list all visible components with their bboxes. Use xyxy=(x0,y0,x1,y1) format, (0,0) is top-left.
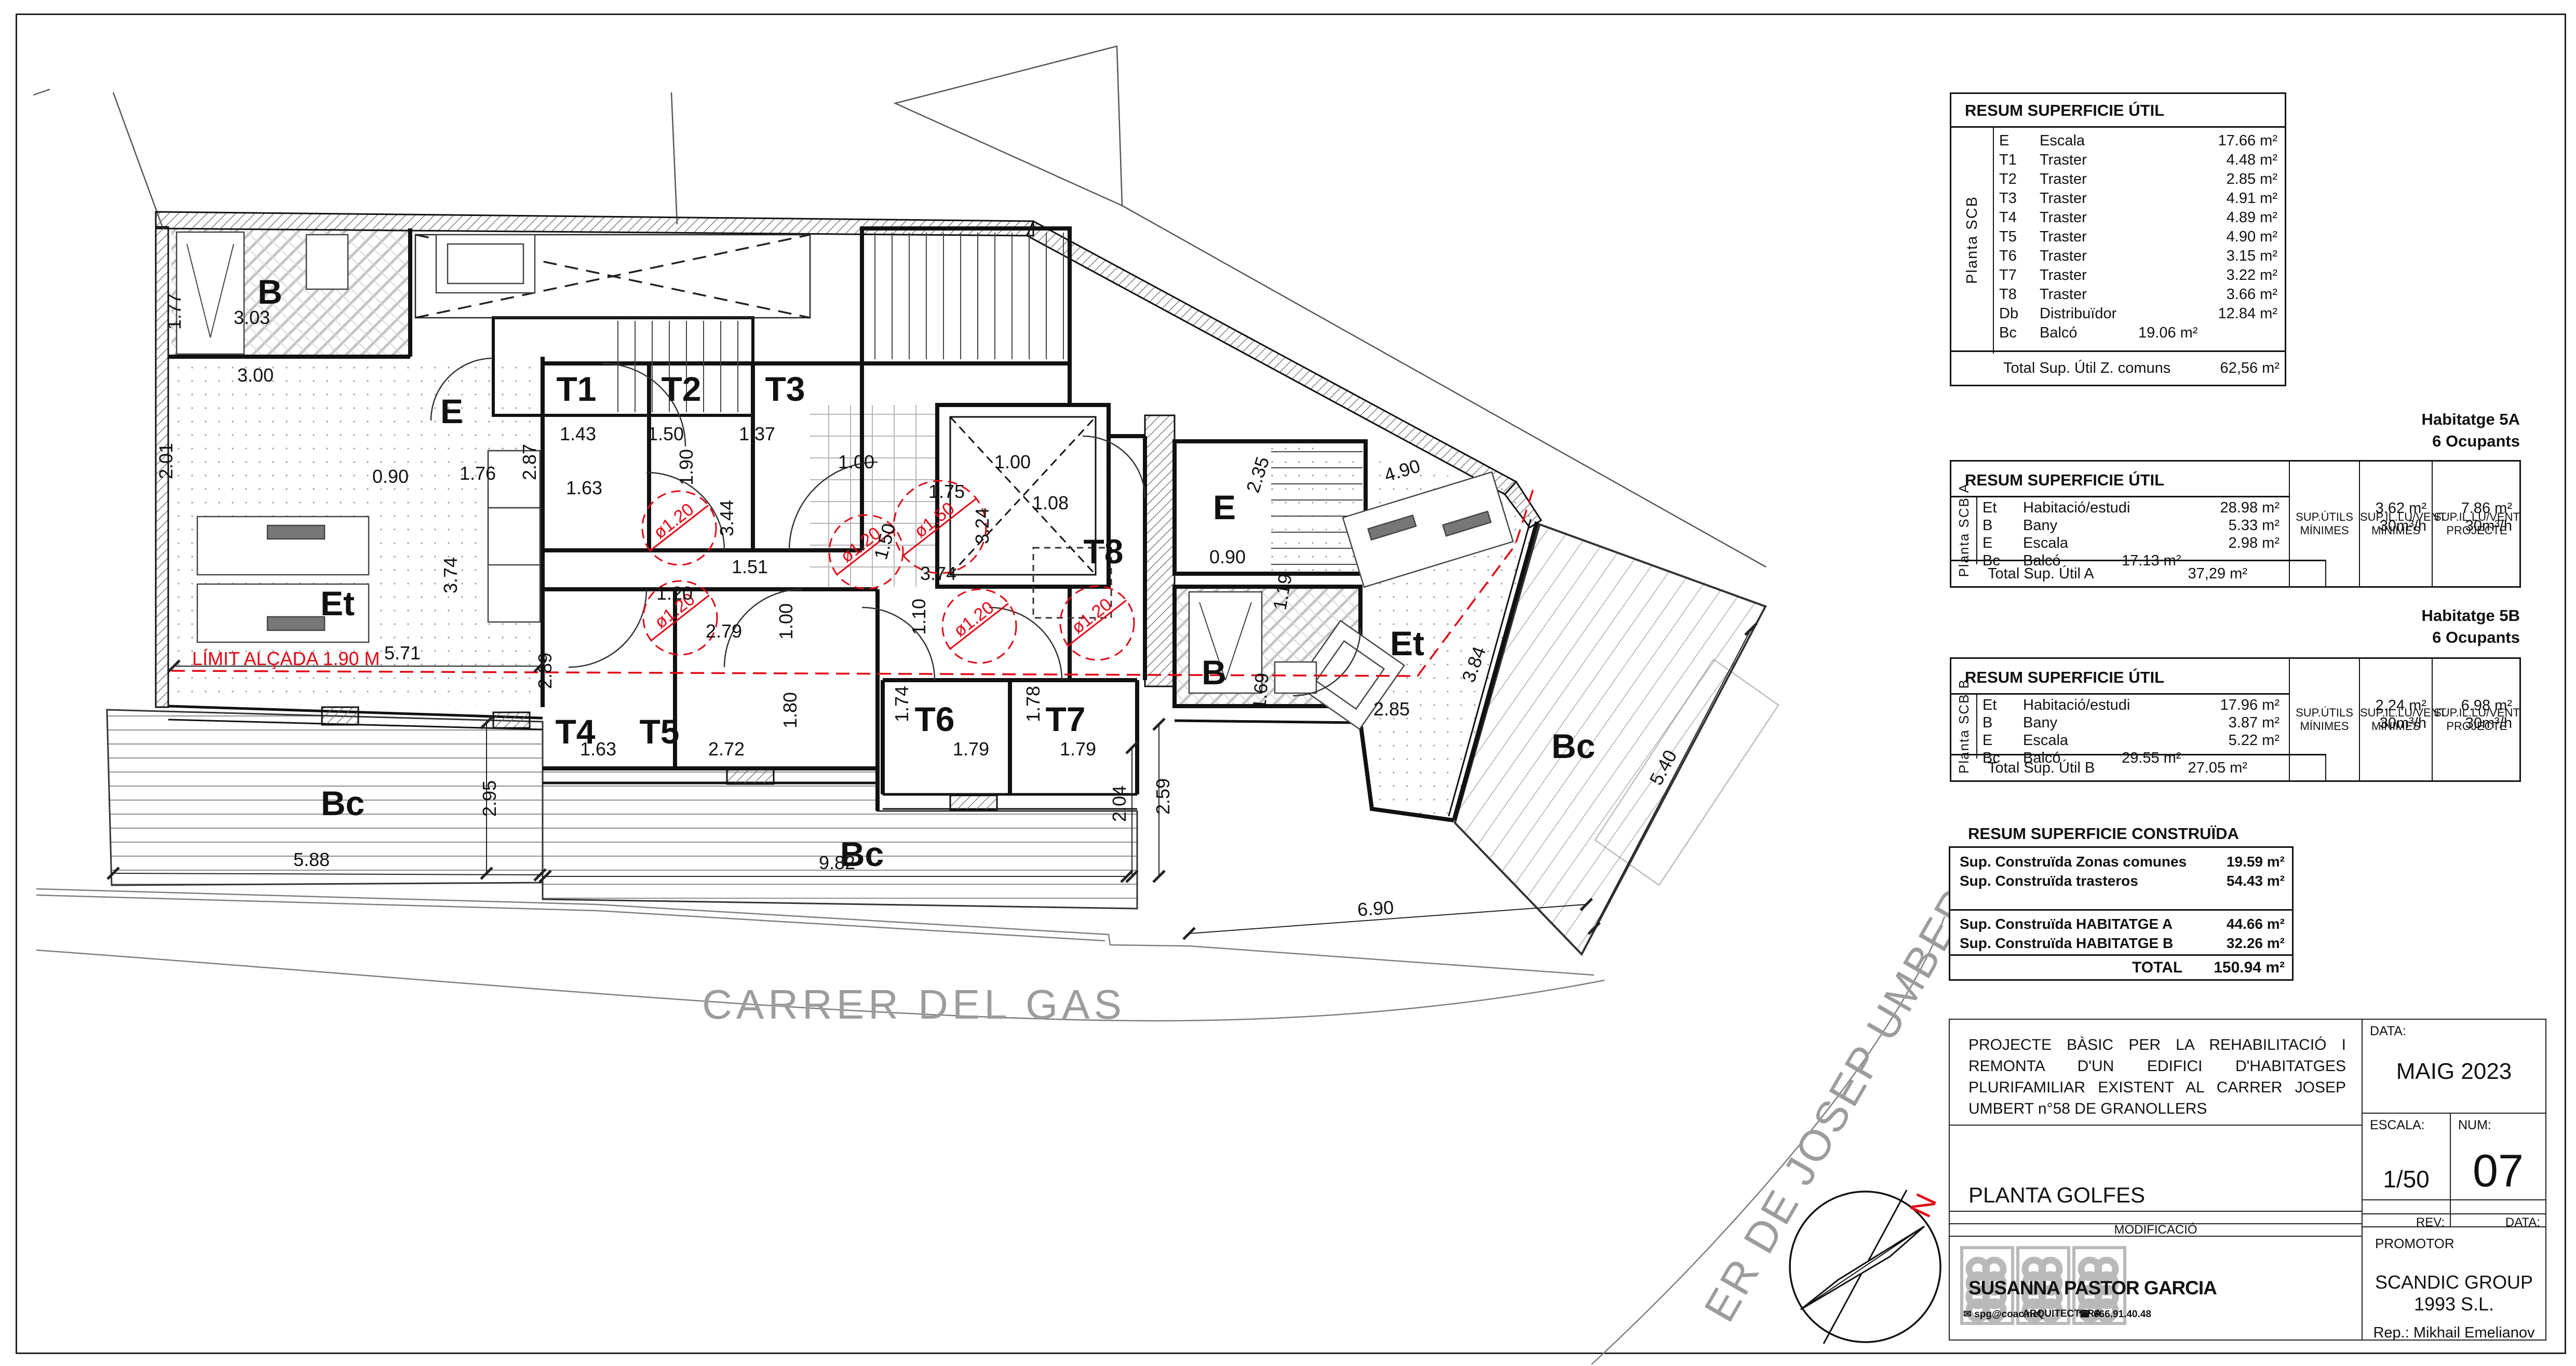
architect-cell: SUSANNA PASTOR GARCIA ✉ spg@coac.net ARQ… xyxy=(1949,1236,2363,1341)
dim-label: 1.43 xyxy=(560,423,596,444)
plan-name-cell: PLANTA GOLFES xyxy=(1949,1125,2363,1212)
dim-label: 1.76 xyxy=(460,463,496,484)
dim-label: 1.08 xyxy=(1032,492,1069,513)
escala-cell: ESCALA: 1/50 xyxy=(2362,1113,2451,1200)
table-row: T6Traster3.15 m² xyxy=(1999,247,2282,266)
dim-label: 2.87 xyxy=(519,444,540,480)
room-label: Bc xyxy=(321,784,365,822)
dim-label: 2.01 xyxy=(155,443,177,479)
dim-label: 3.03 xyxy=(234,307,270,328)
room-label: Bc xyxy=(1552,727,1595,765)
table-habitatge-b: RESUM SUPERFICIE ÚTIL SUP.ÚTILS MÍNIMES … xyxy=(1950,657,2521,782)
table-title: RESUM SUPERFICIE ÚTIL xyxy=(1951,94,2285,120)
dim-label: 1.00 xyxy=(994,451,1031,472)
table-row: T1Traster4.48 m² xyxy=(1999,151,2282,170)
dim-label: 1.37 xyxy=(739,423,775,444)
table-row: Sup. Construïda HABITATGE B32.26 m² xyxy=(1950,934,2292,953)
dim-label: N xyxy=(1904,1188,1944,1222)
street-label: CARRER DEL GAS xyxy=(702,981,1126,1027)
dim-label: 2.89 xyxy=(534,653,556,689)
table-resum-util-comuns: RESUM SUPERFICIE ÚTIL Planta SCB EEscala… xyxy=(1950,92,2286,386)
dim-label: 1.63 xyxy=(580,738,616,760)
hab-b-heading: Habitatge 5B 6 Ocupants xyxy=(2364,606,2520,647)
drawing-sheet: ø1.20ø1.20ø1.50ø1.20ø1.20ø1.20 BEEtT1T2T… xyxy=(0,0,2576,1366)
modificacio-row: MODIFICACIÓ xyxy=(1949,1223,2363,1237)
room-label: B xyxy=(1202,653,1226,692)
dim-label: 1.77 xyxy=(164,293,185,330)
sheet-number: 07 xyxy=(2451,1144,2545,1197)
total-value: 37,29 m² xyxy=(2188,565,2325,583)
date-value: MAIG 2023 xyxy=(2363,1059,2545,1085)
dim-label: 1.51 xyxy=(732,556,768,577)
table-row: EEscala5.22 m² xyxy=(1982,732,2284,749)
dim-label: 1.80 xyxy=(779,692,801,728)
dim-label: 5.88 xyxy=(293,849,330,870)
dim-label: 1.69 xyxy=(1248,672,1273,710)
table-row: T4Traster4.89 m² xyxy=(1999,208,2282,227)
dim-label: 1.00 xyxy=(775,603,797,640)
room-label: E xyxy=(440,392,463,430)
table-row: EtHabitació/estudi17.96 m² xyxy=(1982,696,2284,714)
vent-value: 7.86 m² xyxy=(2432,500,2517,517)
table-row: T8Traster3.66 m² xyxy=(1999,285,2282,304)
room-label: T7 xyxy=(1045,700,1085,738)
architect-phone: ☎ 666.91.40.48 xyxy=(2079,1308,2151,1320)
dim-label: 3.74 xyxy=(440,557,461,593)
architect-name: SUSANNA PASTOR GARCIA xyxy=(1968,1277,2217,1299)
table-row: EEscala17.66 m² xyxy=(1999,131,2282,151)
room-label: E xyxy=(1213,488,1236,526)
dim-label: 3.74 xyxy=(920,563,956,584)
vent-value: 3.62 m² xyxy=(2359,500,2432,517)
dim-label: 1.20 xyxy=(656,583,693,604)
promotor-rep: Rep.: Mikhail Emelianov xyxy=(2363,1324,2545,1342)
dim-label: 2.85 xyxy=(1373,698,1410,720)
table-row: BBany5.33 m² xyxy=(1982,517,2284,534)
table-body: EtHabitació/estudi28.98 m²BBany5.33 m²EE… xyxy=(1982,499,2284,570)
stair-treads-top xyxy=(872,233,1066,359)
circle-1.20: ø1.20 xyxy=(650,499,698,543)
total-label: TOTAL xyxy=(1950,959,2214,977)
dim-label: 5.71 xyxy=(384,642,421,664)
dim-label: 2.72 xyxy=(708,738,745,760)
table-row: EEscala2.98 m² xyxy=(1982,534,2284,552)
vent-value: 30m³/h xyxy=(2359,518,2432,535)
project-description: PROJECTE BÀSIC PER LA REHABILITACIÓ I RE… xyxy=(1950,1020,2362,1119)
blank-cell xyxy=(2450,1199,2546,1214)
dim-label: 1.00 xyxy=(838,451,874,472)
room-label: T8 xyxy=(1083,532,1123,571)
table-row: EtHabitació/estudi28.98 m² xyxy=(1982,499,2284,517)
vent-value: 2.24 m² xyxy=(2359,697,2432,714)
dim-label: 1.79 xyxy=(953,738,989,760)
dim-label: 1.10 xyxy=(908,599,929,635)
scale-value: 1/50 xyxy=(2363,1165,2450,1193)
num-cell: NUM: 07 xyxy=(2450,1113,2546,1200)
circle-1.20: ø1.20 xyxy=(950,598,998,641)
dim-label: 3.24 xyxy=(972,508,993,544)
promotor-name: SCANDIC GROUP 1993 S.L. xyxy=(2363,1272,2545,1315)
table-row: T2Traster2.85 m² xyxy=(1999,170,2282,189)
dim-label: 1.75 xyxy=(928,481,965,502)
dim-label: 2.04 xyxy=(1109,786,1130,822)
table-row: T3Traster4.91 m² xyxy=(1999,189,2282,208)
construida-title: RESUM SUPERFICIE CONSTRUÏDA xyxy=(1968,824,2239,843)
table-row: Sup. Construïda trasteros54.43 m² xyxy=(1950,871,2292,890)
table-construida: Sup. Construïda Zonas comunes19.59 m²Sup… xyxy=(1949,846,2294,981)
table-body: Sup. Construïda HABITATGE A44.66 m²Sup. … xyxy=(1950,914,2292,953)
data-cell: DATA: MAIG 2023 xyxy=(2362,1019,2546,1114)
room-label: T5 xyxy=(639,712,679,751)
total-value: 62,56 m² xyxy=(2220,360,2285,377)
total-label: Total Sup. Útil A xyxy=(1988,565,2188,583)
blank-cell xyxy=(2362,1199,2451,1214)
dim-label: 3.44 xyxy=(716,500,737,536)
dim-label: LÍMIT ALÇADA 1.90 M xyxy=(192,648,380,669)
table-body: Sup. Construïda Zonas comunes19.59 m²Sup… xyxy=(1950,848,2292,890)
dim-label: 1.50 xyxy=(648,423,684,444)
dim-label: 0.90 xyxy=(1209,546,1246,567)
project-description-cell: PROJECTE BÀSIC PER LA REHABILITACIÓ I RE… xyxy=(1949,1019,2363,1126)
table-row: Sup. Construïda Zonas comunes19.59 m² xyxy=(1950,852,2292,871)
room-label: T2 xyxy=(661,370,701,408)
room-label: B xyxy=(258,273,282,311)
rev-cell: REV: xyxy=(2362,1213,2451,1227)
vent-value: 30m³/h xyxy=(2432,715,2517,732)
total-value: 27.05 m² xyxy=(2188,760,2325,777)
dim-label: 2.95 xyxy=(479,780,500,817)
table-body: EEscala17.66 m²T1Traster4.48 m²T2Traster… xyxy=(1999,131,2282,343)
dim-label: 2.79 xyxy=(706,620,742,642)
data2-cell: DATA: xyxy=(2450,1213,2546,1227)
room-label: Et xyxy=(320,584,355,623)
dim-label: 1.90 xyxy=(676,449,697,485)
room-label: T3 xyxy=(765,370,805,408)
total-value: 150.94 m² xyxy=(2214,959,2292,977)
vent-value: 30m³/h xyxy=(2359,715,2432,732)
table-row: T7Traster3.22 m² xyxy=(1999,266,2282,285)
dim-label: 1.78 xyxy=(1022,686,1044,722)
circle-1.20: ø1.20 xyxy=(1068,594,1116,638)
dim-label: 1.74 xyxy=(891,686,912,722)
vent-value: 6.98 m² xyxy=(2432,697,2517,714)
dim-label: 1.79 xyxy=(1060,738,1096,760)
hab-a-heading: Habitatge 5A 6 Ocupants xyxy=(2364,410,2520,451)
dim-label: 2.59 xyxy=(1152,778,1174,815)
dim-label: 6.90 xyxy=(1357,897,1395,921)
dim-label: 1.63 xyxy=(566,477,602,498)
dim-label: 9.82 xyxy=(819,852,855,873)
table-row: T5Traster4.90 m² xyxy=(1999,227,2282,247)
room-label: Et xyxy=(1390,624,1424,662)
table-side-label: Planta SCB xyxy=(1964,196,1981,284)
room-label: T6 xyxy=(914,700,954,738)
table-row: BcBalcó19.06 m² xyxy=(1999,323,2282,343)
street-lines xyxy=(36,889,1945,1364)
promotor-cell: PROMOTOR SCANDIC GROUP 1993 S.L. Rep.: M… xyxy=(2362,1226,2546,1341)
total-label: Total Sup. Útil Z. comuns xyxy=(2003,360,2220,377)
dim-label: 0.90 xyxy=(372,466,409,487)
room-label: T1 xyxy=(556,370,596,408)
vent-value: 30m³/h xyxy=(2432,518,2517,535)
plan-name: PLANTA GOLFES xyxy=(1950,1126,2362,1208)
table-row: BBany3.87 m² xyxy=(1982,714,2284,732)
table-row: Sup. Construïda HABITATGE A44.66 m² xyxy=(1950,914,2292,934)
dim-label: 3.00 xyxy=(237,364,274,386)
stair-treads-right xyxy=(1271,444,1363,571)
total-label: Total Sup. Útil B xyxy=(1988,760,2188,777)
table-row: DbDistribuïdor12.84 m² xyxy=(1999,304,2282,323)
table-habitatge-a: RESUM SUPERFICIE ÚTIL SUP.ÚTILS MÍNIMES … xyxy=(1950,460,2521,588)
